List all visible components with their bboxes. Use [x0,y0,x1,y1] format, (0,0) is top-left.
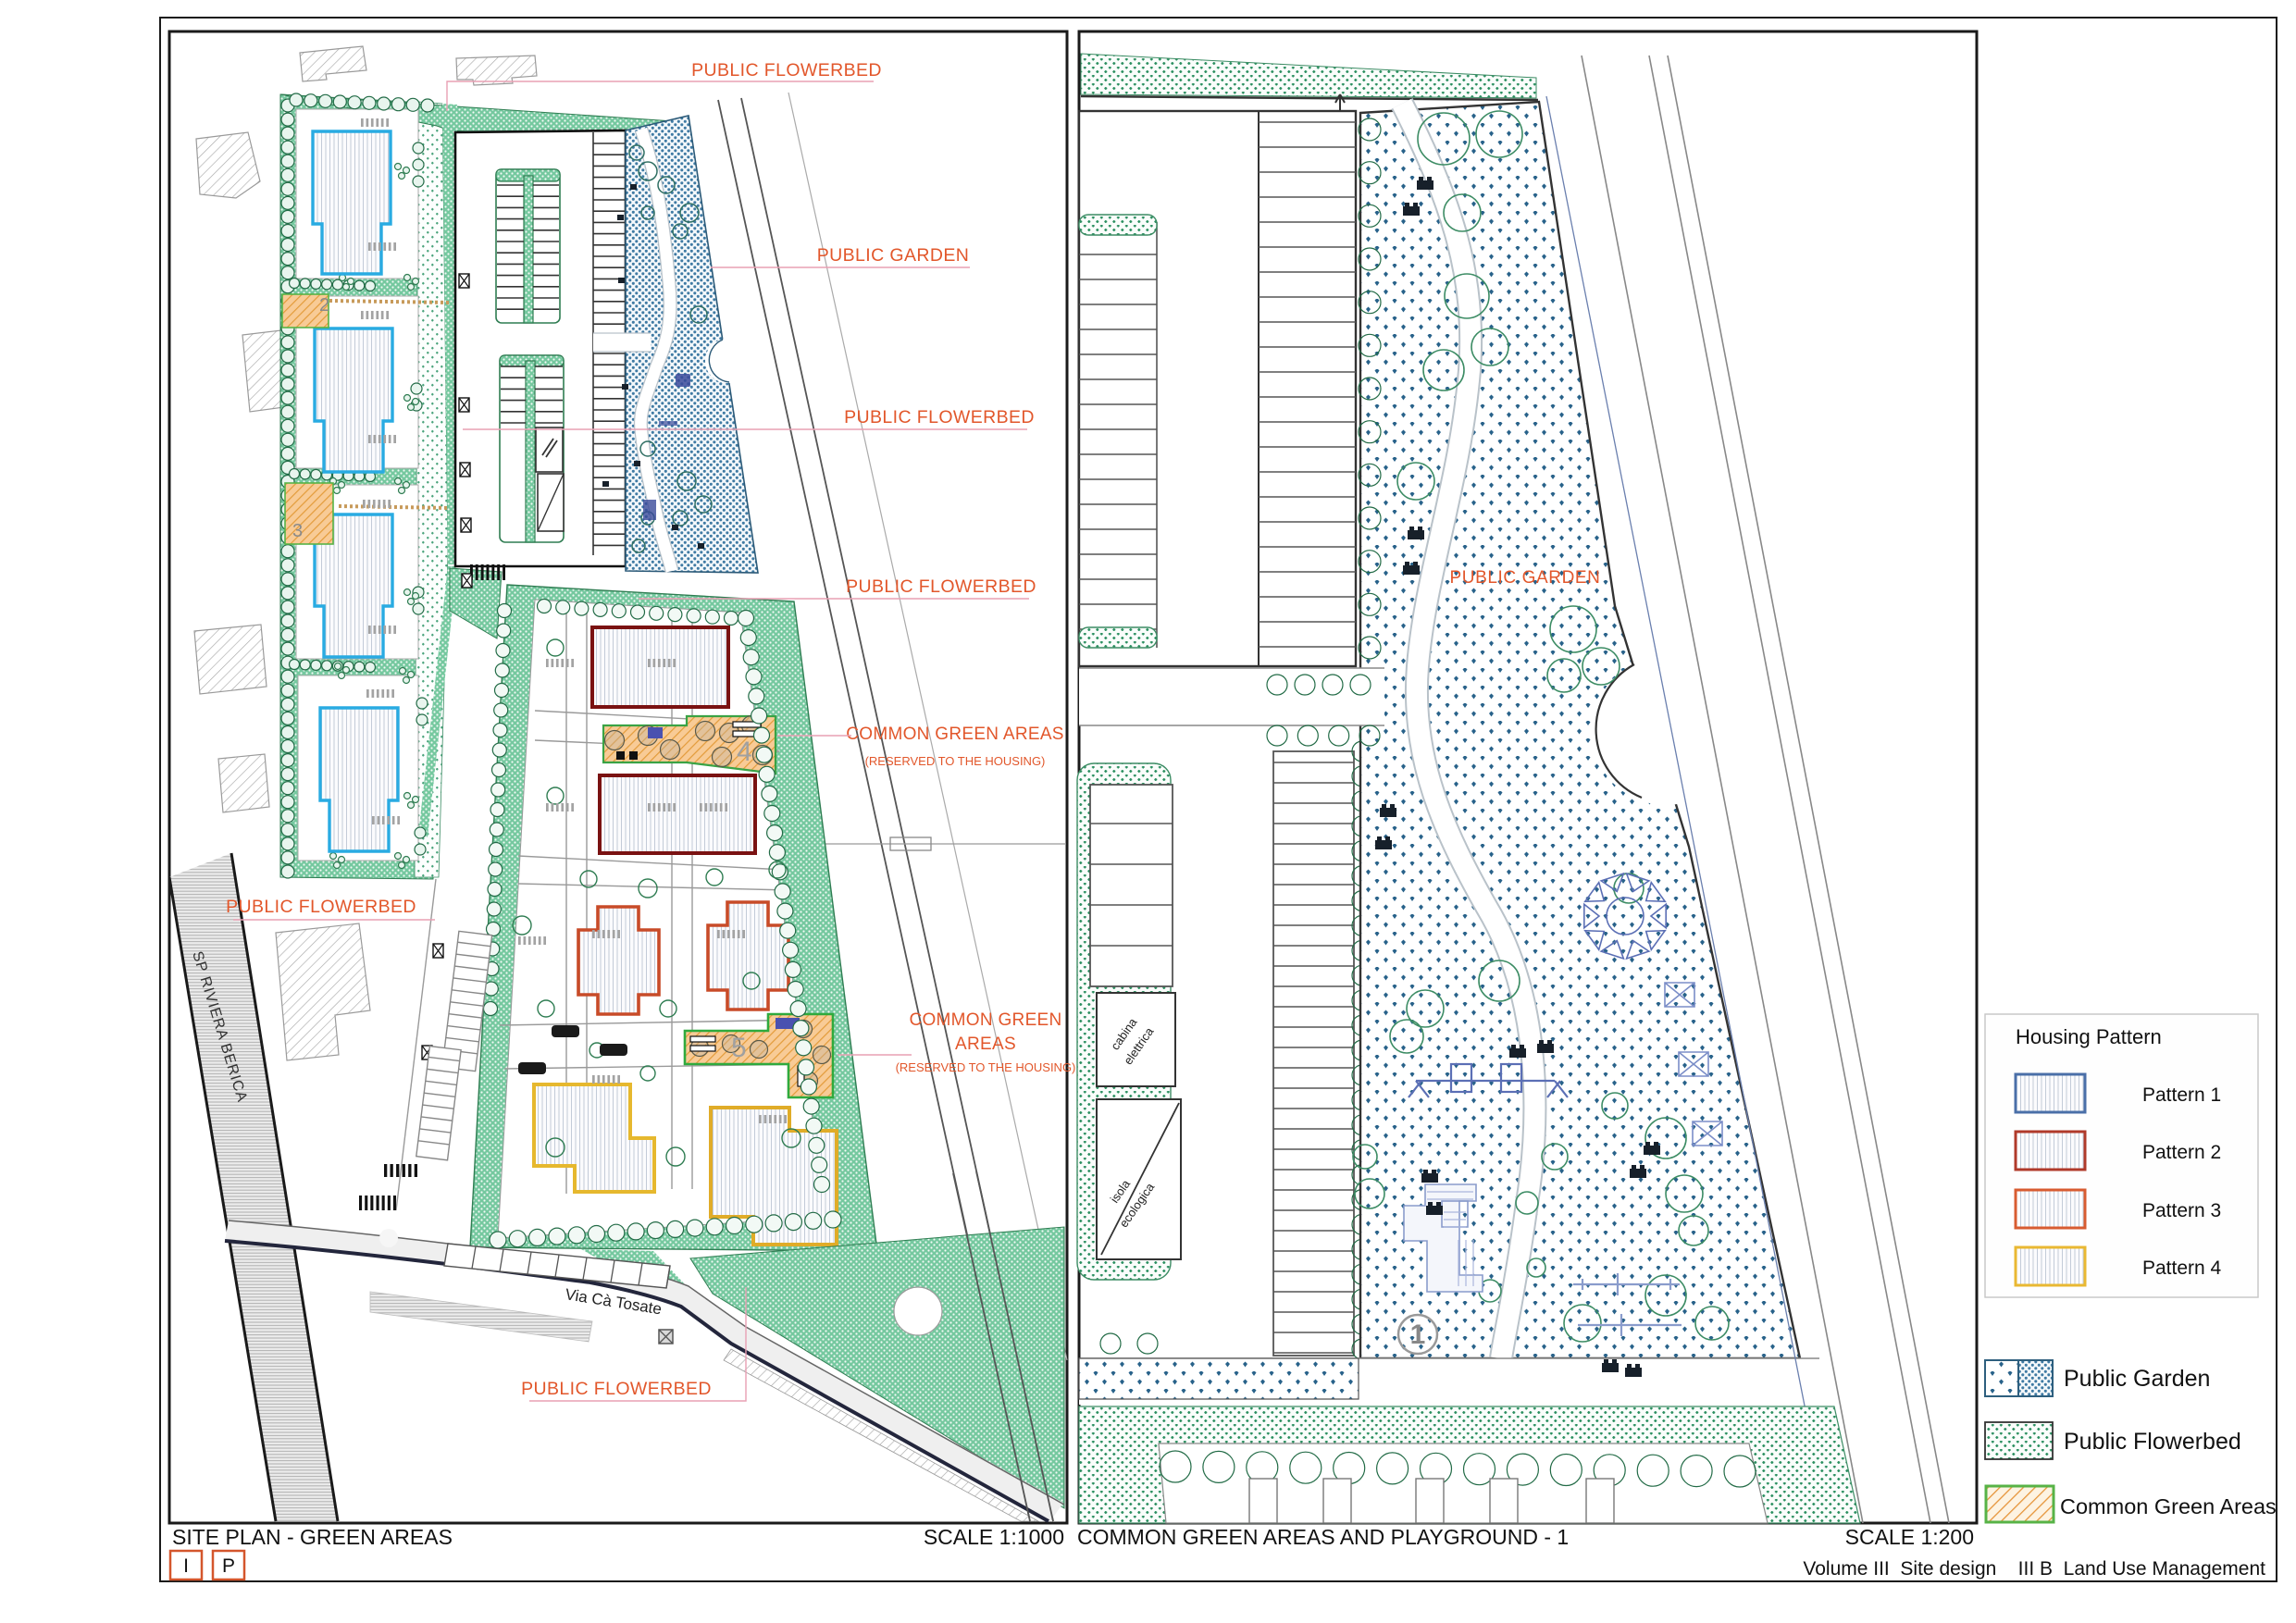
svg-text:COMMON GREEN AREAS AND PLAYGRO: COMMON GREEN AREAS AND PLAYGROUND - 1 [1077,1525,1569,1549]
svg-text:PUBLIC FLOWERBED: PUBLIC FLOWERBED [226,897,416,917]
svg-text:PUBLIC FLOWERBED: PUBLIC FLOWERBED [691,60,882,81]
svg-text:5: 5 [731,1033,747,1063]
svg-text:PUBLIC GARDEN: PUBLIC GARDEN [817,245,970,266]
svg-text:Public Flowerbed: Public Flowerbed [2064,1429,2241,1455]
svg-text:COMMON GREEN: COMMON GREEN [909,1010,1061,1030]
svg-text:SITE PLAN - GREEN AREAS: SITE PLAN - GREEN AREAS [172,1525,453,1549]
svg-text:Housing Pattern: Housing Pattern [2016,1025,2162,1048]
svg-text:3: 3 [292,521,303,541]
svg-text:AREAS: AREAS [955,1035,1016,1054]
svg-text:SCALE 1:1000: SCALE 1:1000 [924,1525,1064,1549]
svg-text:Pattern 2: Pattern 2 [2142,1142,2221,1163]
svg-text:I: I [183,1555,189,1577]
svg-text:PUBLIC FLOWERBED: PUBLIC FLOWERBED [521,1379,712,1399]
svg-text:PUBLIC GARDEN: PUBLIC GARDEN [1449,568,1600,588]
svg-text:2: 2 [319,295,329,316]
svg-text:SCALE 1:200: SCALE 1:200 [1845,1525,1974,1549]
svg-text:PUBLIC FLOWERBED: PUBLIC FLOWERBED [844,407,1035,427]
svg-text:Public Garden: Public Garden [2064,1366,2210,1392]
svg-text:(RESERVED TO THE HOUSING): (RESERVED TO THE HOUSING) [865,754,1046,768]
svg-text:1: 1 [1410,1319,1426,1350]
svg-text:Volume III Site design III: Volume III Site design III B Land Use Ma… [1803,1558,2265,1580]
svg-text:4: 4 [737,737,752,767]
svg-text:PUBLIC FLOWERBED: PUBLIC FLOWERBED [846,576,1036,597]
svg-text:COMMON GREEN AREAS: COMMON GREEN AREAS [846,725,1064,744]
svg-text:Pattern 1: Pattern 1 [2142,1084,2221,1106]
svg-text:P: P [222,1555,235,1577]
svg-text:Pattern 3: Pattern 3 [2142,1200,2221,1221]
svg-text:Common Green Areas: Common Green Areas [2060,1494,2277,1518]
svg-text:Pattern 4: Pattern 4 [2142,1258,2222,1279]
svg-text:(RESERVED TO THE HOUSING): (RESERVED TO THE HOUSING) [896,1060,1076,1074]
